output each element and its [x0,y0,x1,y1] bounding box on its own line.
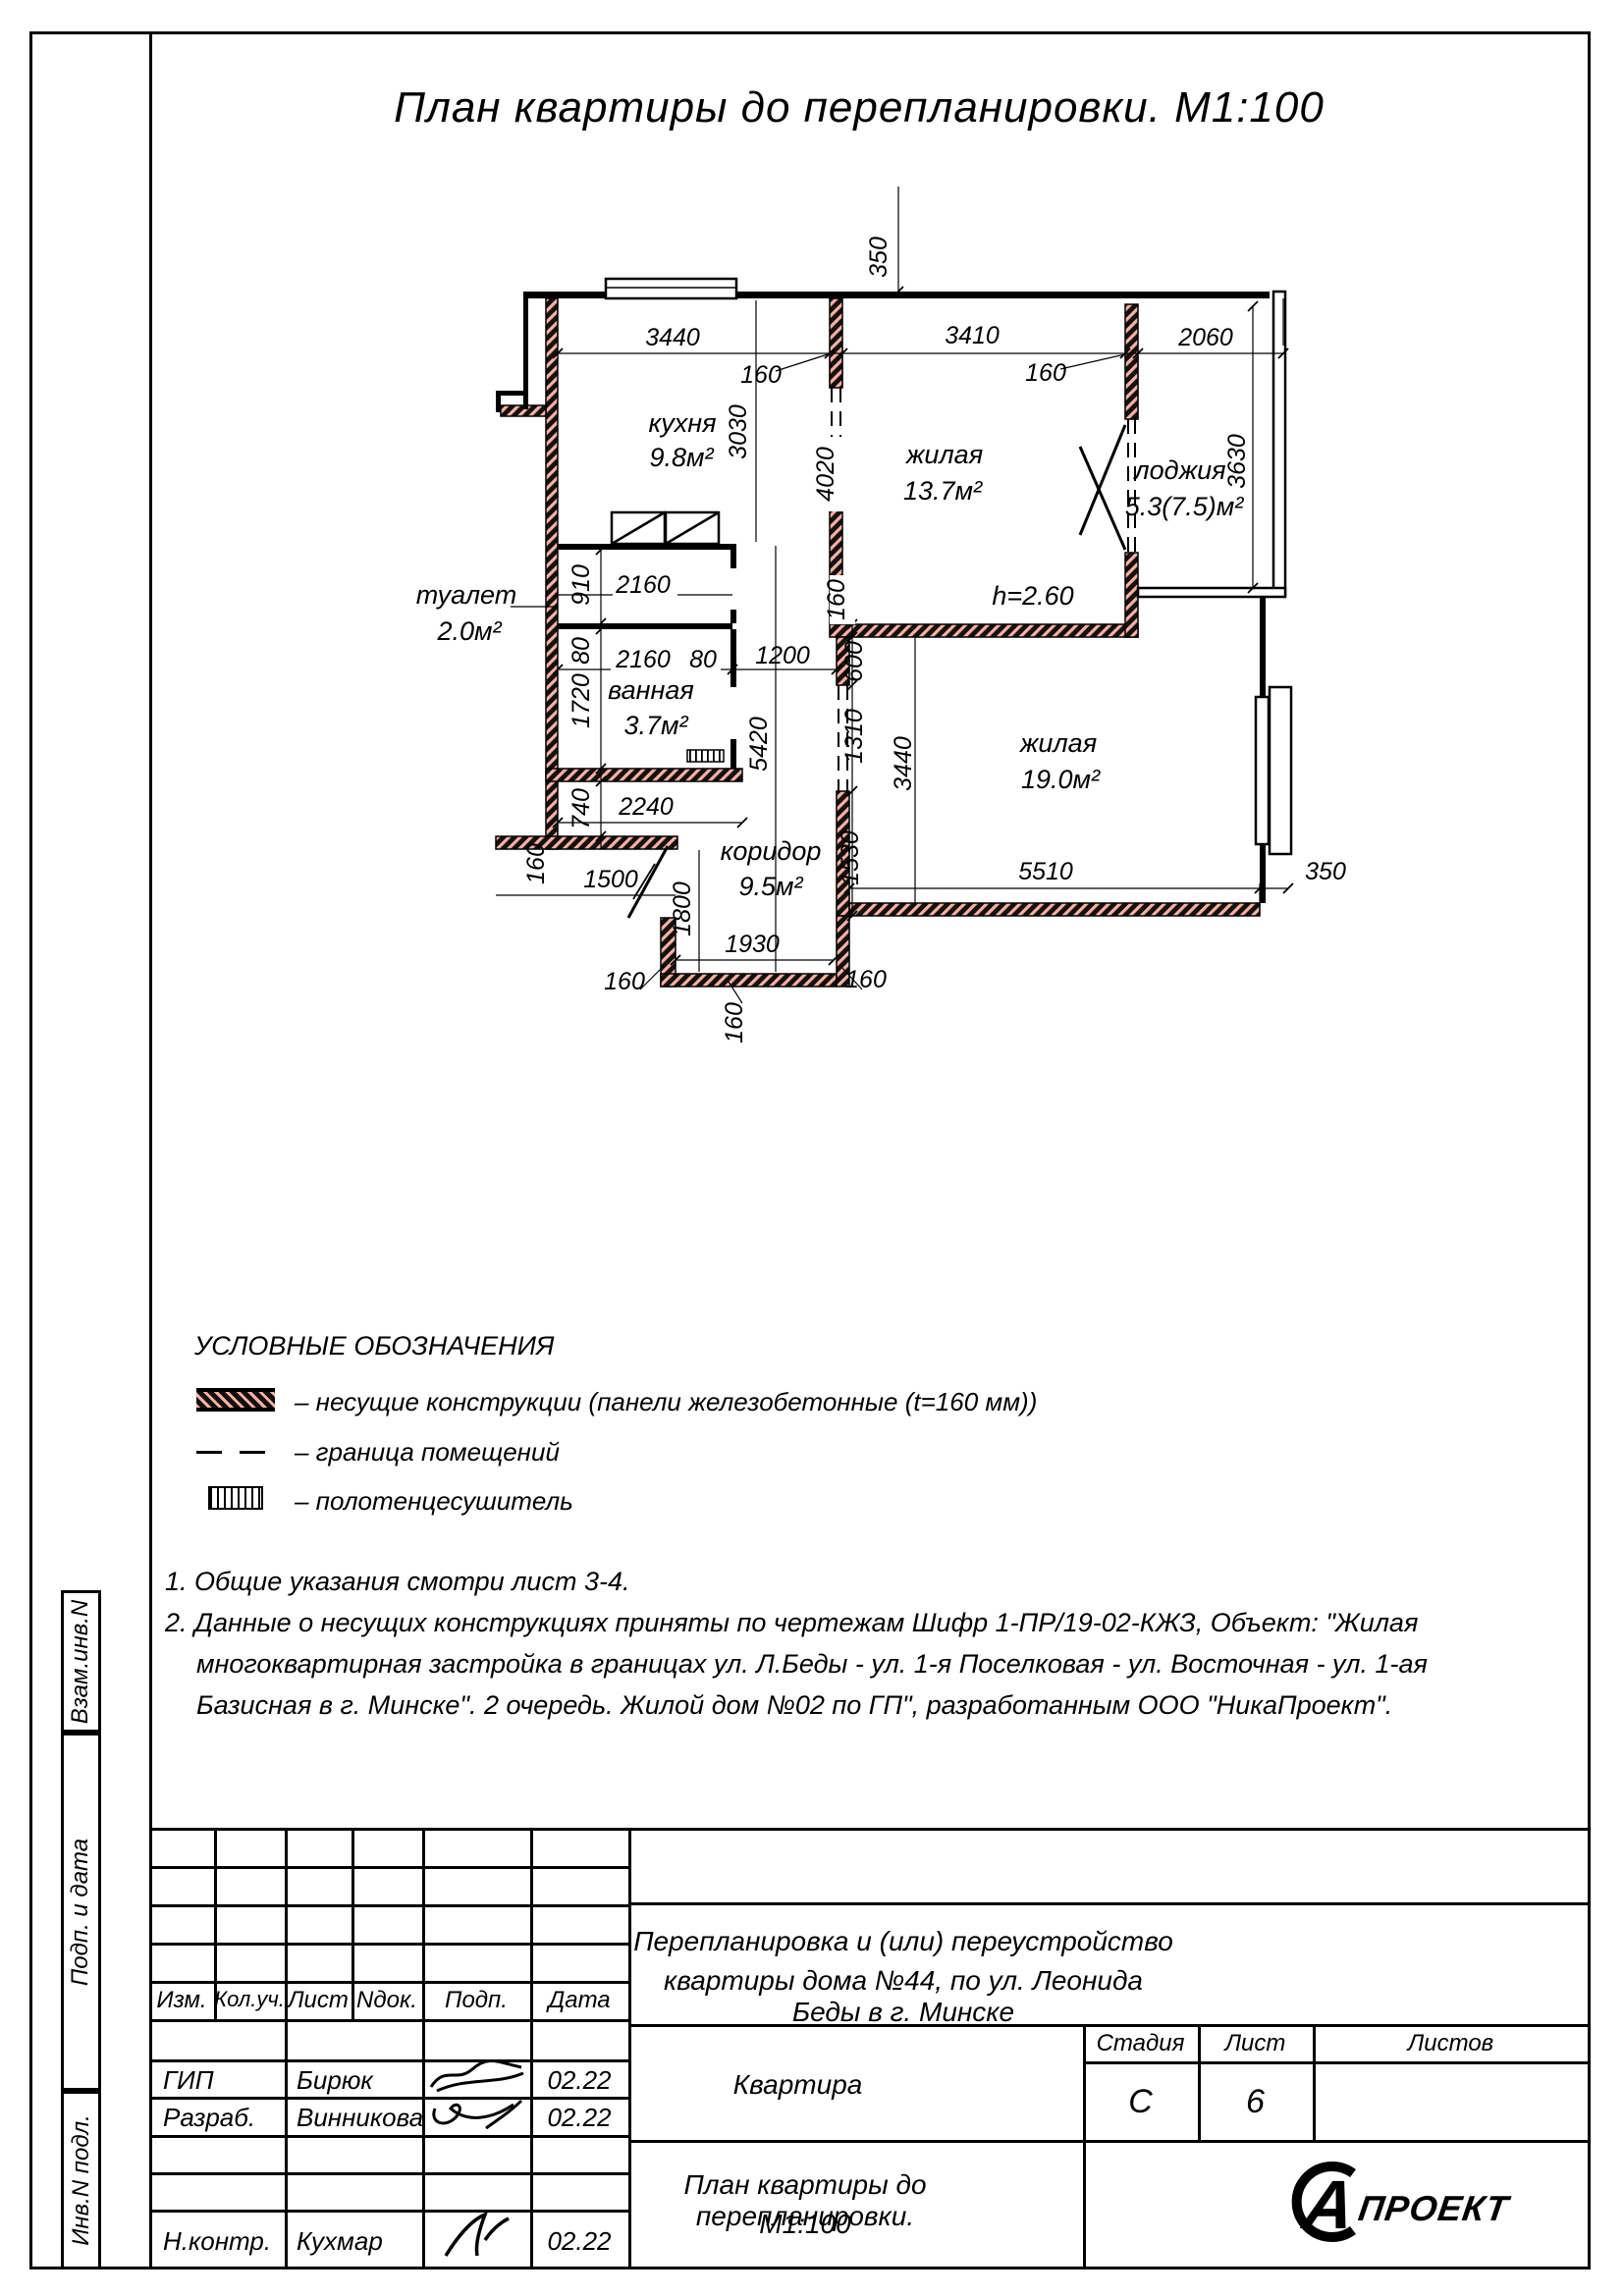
signature-1 [427,2057,527,2097]
grid-line [149,1943,628,1946]
grid-line [149,2019,628,2022]
dim: 350 [865,237,893,278]
grid-line [149,1981,628,1984]
dim: 2160 [615,571,671,599]
dim: 3410 [945,322,1000,349]
margin-label-vzam: Взам.инв.N [61,1590,101,1733]
dim: 160 [604,968,645,995]
role-nkontr: Н.контр. [163,2226,271,2257]
legend-item-2: – граница помещений [295,1437,560,1468]
towel-rail-icon [687,750,724,762]
dim: 1720 [568,673,595,728]
dim: 3440 [645,324,700,351]
grid-line [285,1828,288,2268]
date-3: 02.22 [530,2226,628,2257]
kitchen-cabinets-icon [612,512,719,544]
dim: 160 [1025,359,1066,387]
dim: 4020 [812,447,839,502]
room-area: 13.7м² [903,476,983,506]
room-label: ванная [608,675,694,705]
legend-wall-swatch-icon [196,1388,275,1412]
role-razrab: Разраб. [163,2103,255,2133]
legend-title: УСЛОВНЫЕ ОБОЗНАЧЕНИЯ [194,1331,554,1362]
dim: 3630 [1223,434,1251,489]
grid-line [628,1902,1591,1905]
sheets-label: Листов [1313,2030,1589,2057]
dim: 5510 [1018,858,1073,885]
dim: 160 [823,579,850,620]
stage-label: Стадия [1083,2030,1198,2057]
dim: 910 [568,564,595,606]
note-line-3: многоквартирная застройка в границах ул.… [196,1649,1428,1680]
room-area: 3.7м² [623,711,688,740]
stage-value: С [1083,2083,1198,2121]
name-biryuk: Бирюк [297,2065,373,2096]
note-line-1: 1. Общие указания смотри лист 3-4. [165,1567,629,1597]
dim: 80 [568,637,595,665]
dim: 3030 [725,404,752,459]
note-line-2: 2. Данные о несущих конструкциях приняты… [165,1608,1418,1638]
height-note: h=2.60 [992,581,1073,611]
name-kuhmar: Кухмар [297,2226,383,2257]
logo-word: ПРОЕКТ [1356,2188,1513,2228]
dim: 3440 [890,736,917,791]
dim: 160 [522,843,550,884]
room-label: лоджия [1132,455,1225,485]
dim: 160 [740,361,782,389]
dim: 350 [1305,858,1346,885]
project-line-1: Перепланировка и (или) переустройство [628,1926,1178,1957]
dim: 1310 [840,709,868,764]
grid-line [149,2135,628,2138]
signature-3 [432,2211,530,2262]
sheet-value: 6 [1198,2083,1313,2121]
signature-2 [427,2095,527,2138]
grid-line [628,2140,1591,2143]
dim: 5420 [745,717,773,772]
project-line-2: квартиры дома №44, по ул. Леонида Беды в… [628,1965,1178,2028]
drawing-sheet: План квартиры до перепланировки. М1:100 [0,0,1623,2296]
grid-line [149,1828,1591,1831]
room-label: коридор [721,836,822,866]
dim: 160 [721,1002,748,1043]
legend-item-1: – несущие конструкции (панели железобето… [295,1387,1037,1417]
dim: 2160 [615,646,671,673]
dim: 80 [689,646,717,673]
grid-line [530,1828,533,2268]
dim: 600 [840,641,868,682]
col-ndok: Nдок. [352,1987,422,2014]
grid-line [149,1904,628,1907]
grid-line [422,1828,425,2268]
room-area: 19.0м² [1021,765,1101,794]
dim: 2240 [618,793,674,821]
dim: 740 [568,788,595,829]
room-label: жилая [1019,728,1097,758]
dim: 1800 [669,881,696,936]
room-label: кухня [648,408,716,438]
grid-line [149,2210,628,2213]
doc-line-2: М1:100 [628,2209,982,2240]
note-line-4: Базисная в г. Минске". 2 очередь. Жилой … [196,1690,1392,1721]
grid-line [1083,2024,1086,2268]
room-area: 9.8м² [649,443,714,472]
room-area: 5.3(7.5)м² [1125,492,1245,521]
legend-boundary-swatch-icon [196,1451,277,1454]
room-area: 9.5м² [738,872,803,901]
role-gip: ГИП [163,2065,214,2096]
dim: 2060 [1177,324,1233,351]
dim: 1200 [755,642,810,669]
living-window-icon [1256,687,1291,854]
kitchen-window-icon [606,279,736,298]
legend-towel-swatch-icon [208,1486,263,1510]
object-name: Квартира [628,2069,967,2101]
room-label: туалет [416,580,517,610]
margin-label-inv: Инв.N подл. [61,2091,101,2269]
col-data: Дата [530,1987,628,2014]
dim: 1930 [725,931,780,958]
company-logo: А ПРОЕКТ [1276,2152,1522,2250]
grid-line [149,2059,628,2062]
date-2: 02.22 [530,2103,628,2133]
floor-plan: кухня 9.8м² жилая 13.7м² лоджия 5.3(7.5)… [334,137,1375,1099]
col-list: Лист [285,1987,352,2014]
dim: 160 [845,966,887,993]
grid-line [149,1866,628,1869]
margin-label-podp: Подп. и дата [61,1733,101,2091]
col-izm: Изм. [149,1987,214,2014]
dim: 1500 [583,866,638,893]
room-area: 2.0м² [436,616,502,646]
page-title: План квартиры до перепланировки. М1:100 [295,83,1424,133]
date-1: 02.22 [530,2065,628,2096]
name-vinnikova: Винникова [297,2103,423,2133]
col-koluch: Кол.уч. [214,1987,285,2012]
col-podp: Подп. [422,1987,530,2014]
grid-line [149,2172,628,2175]
dim: 1530 [837,830,864,885]
room-label: жилая [905,440,983,469]
legend-item-3: – полотенцесушитель [295,1486,573,1517]
grid-line [149,2097,628,2100]
grid-line [1083,2061,1591,2064]
sheet-label: Лист [1198,2030,1313,2057]
